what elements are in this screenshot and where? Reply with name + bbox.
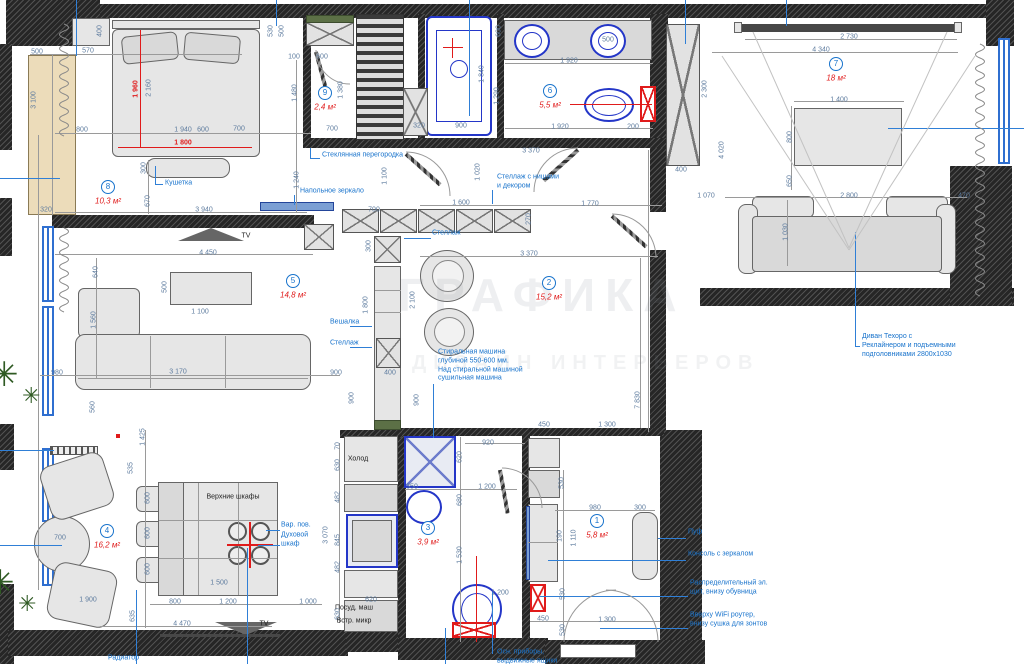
dim-label: 1 300: [598, 422, 616, 429]
dim-label: 1 200: [219, 599, 237, 606]
dim-label: 620: [365, 597, 377, 604]
wall-segment: [650, 148, 666, 212]
dim-label: 470: [958, 193, 970, 200]
dim-label: 700: [326, 126, 338, 133]
screen-end: [954, 22, 962, 33]
room-area-label: 16,2 м²: [94, 541, 120, 550]
dim-label: 900: [455, 123, 467, 130]
dim-label: 482: [335, 561, 342, 573]
dim-label: 3 170: [169, 369, 187, 376]
dim-label: 920: [482, 440, 494, 447]
dim-label: 450: [537, 616, 549, 623]
red-marking-line: [249, 522, 251, 568]
wall-segment: [398, 428, 664, 436]
dimension-line: [159, 520, 277, 521]
callout-line: [855, 346, 860, 347]
dimension-line: [52, 55, 53, 215]
room-number-badge: 8: [101, 180, 115, 194]
dimension-line: [405, 489, 517, 490]
kitchen-cabinet: [344, 570, 398, 598]
room-area-label: 2,4 м²: [314, 103, 336, 112]
dimension-line: [198, 483, 199, 595]
closet-shelf: [306, 15, 354, 23]
wall-segment: [52, 215, 314, 228]
bench: [146, 158, 230, 178]
dim-label: 500: [279, 25, 286, 37]
dim-label: 980: [589, 505, 601, 512]
text-label: Холод: [348, 456, 368, 463]
dim-label: 845: [335, 534, 342, 546]
dim-label: 3 940: [195, 207, 213, 214]
shelf-unit: [374, 236, 401, 263]
dim-label: 2 100: [410, 291, 417, 309]
washing-machine: [404, 436, 456, 488]
dim-label: 2 800: [840, 193, 858, 200]
wc-sink: [406, 490, 442, 524]
room-area-label: 3,9 м²: [417, 538, 439, 547]
text-label: Верхние шкафы: [206, 494, 259, 501]
red-marking-line: [140, 30, 141, 148]
callout-line: [492, 592, 493, 654]
sofa: [75, 334, 311, 390]
text-label: TV: [260, 621, 269, 628]
dim-label: 800: [169, 599, 181, 606]
callout-label: Вверху WiFi роутер, внизу сушка для зонт…: [690, 611, 767, 629]
dim-label: 400: [384, 370, 396, 377]
dimension-line: [794, 101, 904, 102]
window: [998, 38, 1010, 164]
entry-door-threshold: [560, 644, 636, 658]
dim-label: 530: [560, 588, 567, 600]
console-mirror: [528, 504, 558, 582]
dim-label: 4 020: [719, 141, 726, 159]
dim-label: 600: [197, 127, 209, 134]
dim-label: 1 020: [475, 163, 482, 181]
dimension-line: [460, 437, 461, 642]
dim-label: 350: [406, 484, 418, 491]
dimension-line: [55, 254, 313, 255]
callout-line: [404, 238, 431, 239]
media-table: [794, 108, 902, 166]
callout-line: [276, 0, 277, 26]
pillow: [183, 32, 241, 65]
red-marking-line: [116, 434, 120, 438]
dim-label: 530: [559, 477, 566, 489]
red-marking-line: [476, 556, 477, 642]
dimension-line: [528, 542, 558, 543]
callout-label: Осн. приборы, выдвижные ящики: [497, 648, 557, 664]
door-leaf: [405, 153, 442, 187]
room-number-badge: 5: [286, 274, 300, 288]
dim-label: 482: [335, 491, 342, 503]
dim-label: 535: [128, 462, 135, 474]
callout-label: Стеллаж с нишами и декором: [497, 173, 559, 191]
room-area-label: 10,3 м²: [95, 197, 121, 206]
bed-headboard: [112, 20, 260, 29]
niche-shelf: [380, 209, 417, 233]
dim-label: 2 730: [840, 34, 858, 41]
dim-label: 1 840: [479, 65, 486, 83]
callout-line: [786, 0, 787, 26]
window: [42, 226, 54, 302]
dim-label: 3 100: [31, 91, 38, 109]
dim-label: 1 800: [174, 140, 192, 147]
dim-label: 270: [526, 213, 533, 225]
text-label: Посуд. маш: [335, 605, 373, 612]
recliner-sofa: [752, 216, 942, 272]
dim-label: 570: [82, 48, 94, 55]
dim-label: 600: [145, 492, 152, 504]
dim-label: 900: [330, 370, 342, 377]
dimension-line: [505, 63, 653, 64]
dim-label: 530: [268, 25, 275, 37]
hall-cabinet: [528, 438, 560, 468]
dim-label: 1 900: [79, 597, 97, 604]
dim-label: 1 960: [133, 80, 140, 98]
tall-wardrobe: [666, 24, 700, 166]
dim-label: 4 340: [812, 47, 830, 54]
callout-label: Консоль с зеркалом: [688, 551, 753, 560]
island-side: [158, 482, 184, 596]
room-number-badge: 4: [100, 524, 114, 538]
sofa-cushion: [752, 196, 814, 218]
dim-label: 70: [335, 442, 342, 450]
text-label: Встр. микр: [337, 618, 372, 625]
dimension-line: [150, 336, 151, 388]
callout-label: Стеллаж: [330, 340, 359, 349]
kitchen-cabinet: [344, 484, 398, 512]
wall-segment: [346, 632, 400, 652]
dim-label: 1 480: [292, 84, 299, 102]
callout-line: [685, 0, 686, 44]
wall-segment: [0, 198, 12, 256]
door-leaf: [498, 470, 510, 514]
screen-end: [734, 22, 742, 33]
dimension-line: [55, 212, 307, 213]
dim-label: 1 290: [494, 87, 501, 105]
tv-console: [160, 634, 280, 637]
callout-line: [76, 0, 77, 56]
callout-line: [266, 530, 280, 531]
plant-icon: ✳: [22, 385, 62, 415]
room-area-label: 15,2 м²: [536, 293, 562, 302]
callout-line: [310, 158, 320, 159]
callout-label: Стиральная машина глубиной 550-600 мм. Н…: [438, 349, 523, 384]
dim-label: 1 100: [191, 309, 209, 316]
dim-label: 1 770: [581, 201, 599, 208]
dimension-line: [225, 336, 226, 388]
bathtub-drain: [450, 60, 468, 78]
shelf-unit: [304, 224, 334, 250]
callout-label: Распределительный эл. щит, внизу обувниц…: [690, 579, 768, 597]
room-area-label: 14,8 м²: [280, 291, 306, 300]
callout-label: Вар. пов.: [281, 522, 311, 531]
dimension-line: [78, 378, 308, 379]
dim-label: 1 400: [830, 97, 848, 104]
dim-label: 7 830: [635, 391, 642, 409]
room-number-badge: 1: [590, 514, 604, 528]
callout-label: Кушетка: [165, 180, 192, 189]
callout-line: [433, 384, 434, 438]
dim-label: 4 450: [199, 250, 217, 257]
dim-label: 1 200: [478, 484, 496, 491]
callout-line: [658, 538, 686, 539]
dim-label: 1 240: [294, 171, 301, 189]
dimension-line: [30, 54, 242, 55]
tv-icon: [178, 228, 244, 241]
hob-burner: [251, 546, 270, 565]
dim-label: 800: [787, 131, 794, 143]
closet-cabinet: [306, 22, 354, 46]
shelf-unit: [376, 338, 401, 368]
dim-label: 530: [560, 624, 567, 636]
callout-line: [294, 195, 295, 205]
callout-line: [548, 560, 686, 561]
dim-label: 100: [288, 54, 300, 61]
callout-line: [469, 0, 470, 116]
dim-label: 1 940: [174, 127, 192, 134]
dim-label: 500: [162, 281, 169, 293]
dim-label: 3 070: [323, 526, 330, 544]
mirror-strip: [526, 506, 530, 580]
dim-label: 2 160: [146, 79, 153, 97]
dim-label: 1 920: [560, 58, 578, 65]
dim-label: 1 380: [338, 81, 345, 99]
callout-label: Стеклянная перегородка: [322, 152, 403, 161]
dim-label: 650: [787, 175, 794, 187]
pouf: [632, 512, 658, 580]
dim-label: 600: [145, 563, 152, 575]
dim-label: 320: [413, 123, 425, 130]
dim-label: 320: [40, 207, 52, 214]
pillow: [121, 31, 180, 65]
dimension-line: [420, 256, 658, 257]
dim-label: 620: [457, 451, 464, 463]
dim-label: 700: [54, 535, 66, 542]
dim-label: 600: [145, 527, 152, 539]
dim-label: 1 000: [299, 599, 317, 606]
floor-mirror: [260, 202, 334, 211]
top-shelf: [72, 18, 110, 46]
wall-segment: [18, 4, 1012, 18]
callout-line: [310, 148, 311, 158]
dim-label: 640: [93, 266, 100, 278]
dim-label: 900: [414, 394, 421, 406]
dim-label: 3 370: [520, 251, 538, 258]
coffee-table: [170, 272, 252, 305]
dim-label: 635: [130, 610, 137, 622]
dim-label: 300: [634, 505, 646, 512]
dim-label: 1 200: [491, 590, 509, 597]
projector-screen: [740, 24, 954, 32]
callout-line: [136, 590, 137, 664]
dim-label: 700: [233, 126, 245, 133]
dimension-line: [40, 375, 340, 376]
dim-label: 1 425: [140, 428, 147, 446]
dim-label: 670: [145, 195, 152, 207]
hall-cabinet: [528, 470, 560, 498]
dim-label: 450: [538, 422, 550, 429]
dim-label: 500: [602, 37, 614, 44]
dim-label: 1 110: [571, 530, 578, 547]
hob-burner: [251, 522, 270, 541]
dim-label: 200: [627, 124, 639, 131]
red-marking-line: [570, 104, 652, 105]
bath-sink-bowl: [522, 32, 542, 50]
dim-label: 1 530: [457, 546, 464, 564]
dim-label: 400: [97, 25, 104, 37]
callout-line: [600, 628, 688, 629]
dim-label: 1 300: [598, 617, 616, 624]
red-marking-line: [443, 47, 463, 48]
callout-line: [445, 628, 446, 664]
dim-label: 980: [51, 370, 63, 377]
callout-line: [888, 128, 1024, 129]
plant-icon: ✳: [18, 593, 58, 623]
room-number-badge: 7: [829, 57, 843, 71]
door-leaf: [611, 215, 648, 249]
callout-label: Стеллаж: [432, 230, 461, 239]
callout-line: [247, 548, 248, 664]
red-marking-line: [452, 38, 453, 58]
dim-label: 900: [349, 392, 356, 404]
wall-segment: [0, 44, 12, 150]
callout-line: [258, 545, 280, 546]
room-area-label: 5,8 м²: [586, 531, 608, 540]
vent-shaft: [452, 622, 496, 638]
floor-plan: ✳✳✳✳ГРАФИКАДИЗАЙН ИНТЕРЬЕРОВ5005704003 1…: [0, 0, 1024, 664]
dim-label: 600: [496, 25, 503, 37]
callout-label: Радиатор: [108, 655, 139, 664]
callout-label: Пуф: [688, 529, 702, 538]
callout-label: Диван Техоро с Реклайнером и подъемными …: [862, 333, 956, 359]
dim-label: 680: [457, 494, 464, 506]
room-number-badge: 2: [542, 276, 556, 290]
dimension-line: [712, 52, 958, 53]
bath-toilet-seat: [592, 95, 626, 116]
niche-shelf: [456, 209, 493, 233]
dimension-line: [465, 443, 525, 444]
room-area-label: 5,5 м²: [539, 101, 561, 110]
dim-label: 500: [31, 49, 43, 56]
dim-label: 300: [141, 162, 148, 174]
callout-line: [155, 184, 163, 185]
dim-label: 1 600: [452, 200, 470, 207]
wall-segment: [950, 166, 1012, 306]
dim-label: 1 800: [363, 296, 370, 314]
cabinet-base: [374, 420, 401, 430]
dim-label: 1 070: [697, 193, 715, 200]
callout-label: Духовой шкаф: [281, 531, 308, 549]
dim-label: 300: [366, 240, 373, 252]
wall-segment: [0, 424, 14, 470]
red-marking-line: [118, 147, 252, 148]
callout-label: Вешалка: [330, 319, 359, 328]
sofa-chaise: [78, 288, 140, 338]
dim-label: 4 470: [173, 621, 191, 628]
electric-panel: [530, 584, 546, 612]
dimension-line: [563, 470, 564, 632]
dim-label: 630: [335, 459, 342, 471]
dim-label: 1 920: [551, 124, 569, 131]
slatted-rack: [356, 14, 404, 140]
callout-line: [492, 190, 493, 204]
room-number-badge: 3: [421, 521, 435, 535]
room-area-label: 18 м²: [826, 74, 845, 83]
dim-label: 700: [368, 207, 380, 214]
room-number-badge: 9: [318, 86, 332, 100]
dimension-line: [530, 621, 660, 622]
dim-label: 1 500: [210, 580, 228, 587]
callout-label: Напольное зеркало: [300, 188, 364, 197]
dim-label: 800: [76, 127, 88, 134]
dim-label: 1 560: [91, 311, 98, 329]
dim-label: 1 100: [382, 167, 389, 185]
dim-label: 400: [675, 167, 687, 174]
kitchen-sink: [352, 520, 392, 562]
dim-label: 1 030: [783, 223, 790, 241]
callout-line: [0, 450, 54, 451]
callout-line: [855, 232, 856, 346]
text-label: TV: [242, 233, 251, 240]
callout-line: [0, 178, 60, 179]
dim-label: 560: [90, 401, 97, 413]
dimension-line: [159, 558, 277, 559]
dim-label: 190: [557, 530, 564, 542]
dim-label: 2 300: [702, 80, 709, 98]
dim-label: 600: [316, 54, 328, 61]
room-number-badge: 6: [543, 84, 557, 98]
dim-label: 3 370: [522, 148, 540, 155]
callout-line: [0, 545, 62, 546]
callout-line: [155, 166, 156, 184]
